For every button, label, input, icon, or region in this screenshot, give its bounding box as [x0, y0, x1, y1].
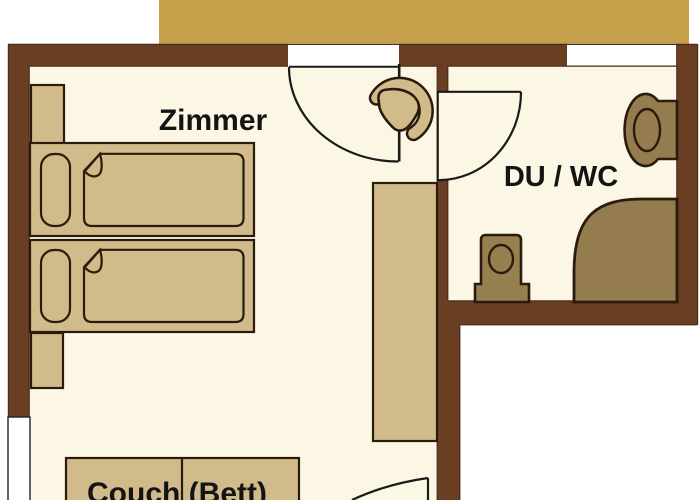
- svg-text:DU / WC: DU / WC: [504, 161, 618, 193]
- svg-text:Zimmer: Zimmer: [159, 104, 268, 137]
- svg-text:Couch (Bett): Couch (Bett): [87, 477, 267, 500]
